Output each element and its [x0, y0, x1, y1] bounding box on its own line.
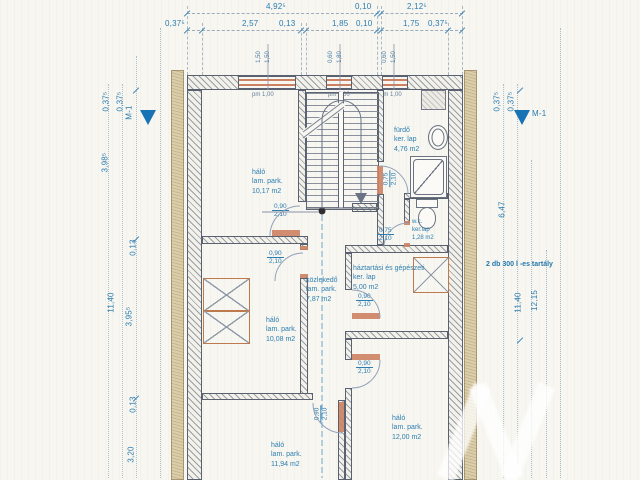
guide-line — [108, 84, 109, 478]
door-size-bed2: 0,902,10 — [267, 250, 284, 266]
dim-right: 6,47 — [498, 201, 507, 217]
extension-line — [381, 6, 382, 75]
dim-top: 1,75 — [403, 19, 419, 28]
dim-left: 3,95⁵ — [124, 307, 133, 327]
dim-left: 3,20 — [127, 446, 136, 462]
marker-m1-left-label: M-1 — [125, 105, 134, 119]
wall-bed4-left-a — [345, 339, 352, 360]
guide-line — [517, 84, 518, 478]
wall-bed1-bottom — [202, 236, 308, 244]
dim-top: 0,10 — [355, 2, 371, 11]
door-size-bed1: 0,902,10 — [272, 203, 289, 219]
dim-right: 11,40 — [514, 292, 523, 312]
room-label-bed1: hálólam. park.10,17 m2 — [252, 168, 283, 196]
door-size-wc: 0,752,10 — [377, 227, 394, 243]
door-leaf-bed1 — [272, 230, 300, 236]
room-label-hall: közlekedőlam. park.7,87 m2 — [306, 276, 338, 304]
dim-right: 0,37⁵ — [492, 92, 501, 112]
wall-utility-left — [345, 253, 352, 290]
insulation-strip-left — [171, 70, 184, 480]
dim-right: 12,15 — [530, 290, 539, 311]
window-size-label: 1,50 — [265, 51, 271, 63]
room-label-bath: fürdőker. lap4,76 m2 — [394, 126, 419, 154]
guide-line — [560, 28, 561, 478]
vent-shaft — [421, 90, 446, 110]
dim-right: 0,37⁵ — [506, 92, 515, 112]
extension-line — [187, 6, 188, 75]
marker-m1-left-triangle — [140, 110, 156, 125]
guide-line — [546, 250, 547, 478]
dim-top: 1,85 — [332, 19, 348, 28]
window-size-label: 1,80 — [337, 51, 343, 63]
dim-top: 4,92⁵ — [266, 2, 286, 11]
shaft-box — [203, 310, 250, 344]
door-jamb — [300, 246, 308, 250]
wall-bed1-stair — [298, 90, 306, 202]
dimension-line — [187, 30, 463, 31]
window-size-label: 1,50 — [391, 51, 397, 63]
door-jamb — [404, 221, 410, 225]
staircase-stringer — [338, 92, 344, 208]
wall-left — [187, 90, 202, 480]
room-label-wc: w.c.ker.lap1,28 m2 — [412, 219, 434, 242]
guide-line — [503, 84, 504, 478]
door-leaf-utility — [352, 313, 380, 319]
window-3 — [382, 76, 408, 89]
room-label-bed4: hálólam. park.12,00 m2 — [392, 414, 423, 442]
marker-m1-right-triangle — [514, 110, 530, 125]
window-2 — [326, 76, 352, 89]
door-jamb — [404, 243, 410, 247]
extension-line — [462, 6, 463, 75]
dim-top: 2,57 — [242, 19, 258, 28]
room-label-utility: háztartási és gépészetiker. lap5,00 m2 — [353, 264, 425, 292]
window-size-label: 0,60 — [328, 51, 334, 63]
dim-left: 3,98⁵ — [100, 153, 109, 173]
window-1 — [238, 76, 296, 89]
wall-bed2-bottom — [202, 393, 313, 400]
dim-top: 0,37⁵ — [428, 19, 448, 28]
dim-left: 11,40 — [107, 292, 116, 312]
wall-bed4-left-b — [345, 388, 352, 480]
dim-top: 0,13 — [279, 19, 295, 28]
wall-top — [187, 75, 463, 90]
dim-top: 0,10 — [356, 19, 372, 28]
room-label-bed3: hálólam. park.11,94 m2 — [271, 441, 302, 469]
dim-top: 0,37⁵ — [165, 19, 185, 28]
room-label-bed2: hálólam. park.10,08 m2 — [266, 316, 297, 344]
door-size-bed3: 0,902,10 — [313, 406, 329, 423]
marker-m1-right-label: M-1 — [532, 109, 546, 118]
guide-line — [160, 28, 161, 478]
dim-top: 2,12⁵ — [407, 2, 427, 11]
window-size-label: 0,60 — [382, 51, 388, 63]
dimension-line — [187, 13, 463, 14]
door-size-utility: 0,902,10 — [356, 293, 373, 309]
tank-note: 2 db 300 l -es tartály — [486, 261, 553, 268]
dim-left: 0,37⁵ — [101, 92, 110, 112]
wall-utility-top — [345, 245, 448, 253]
floor-plan-canvas: 4,92⁵ 0,10 2,12⁵ 0,37⁵ 2,57 0,13 1,85 0,… — [0, 0, 640, 480]
sink — [428, 125, 448, 150]
door-leaf-bed3 — [339, 402, 344, 432]
dim-left: 0,37⁵ — [115, 92, 124, 112]
sill-height-label: pm 1,00 — [252, 92, 274, 98]
wall-utility-bottom — [345, 331, 448, 339]
wall-wc-left — [404, 199, 410, 223]
door-size-bed4: 0,902,10 — [356, 360, 373, 376]
guide-line — [122, 84, 123, 478]
guide-line — [136, 56, 137, 478]
shower-tray — [413, 159, 444, 195]
shaft-box — [203, 278, 250, 312]
door-size-bath: 0,752,10 — [382, 171, 398, 188]
window-size-label: 1,50 — [256, 51, 262, 63]
